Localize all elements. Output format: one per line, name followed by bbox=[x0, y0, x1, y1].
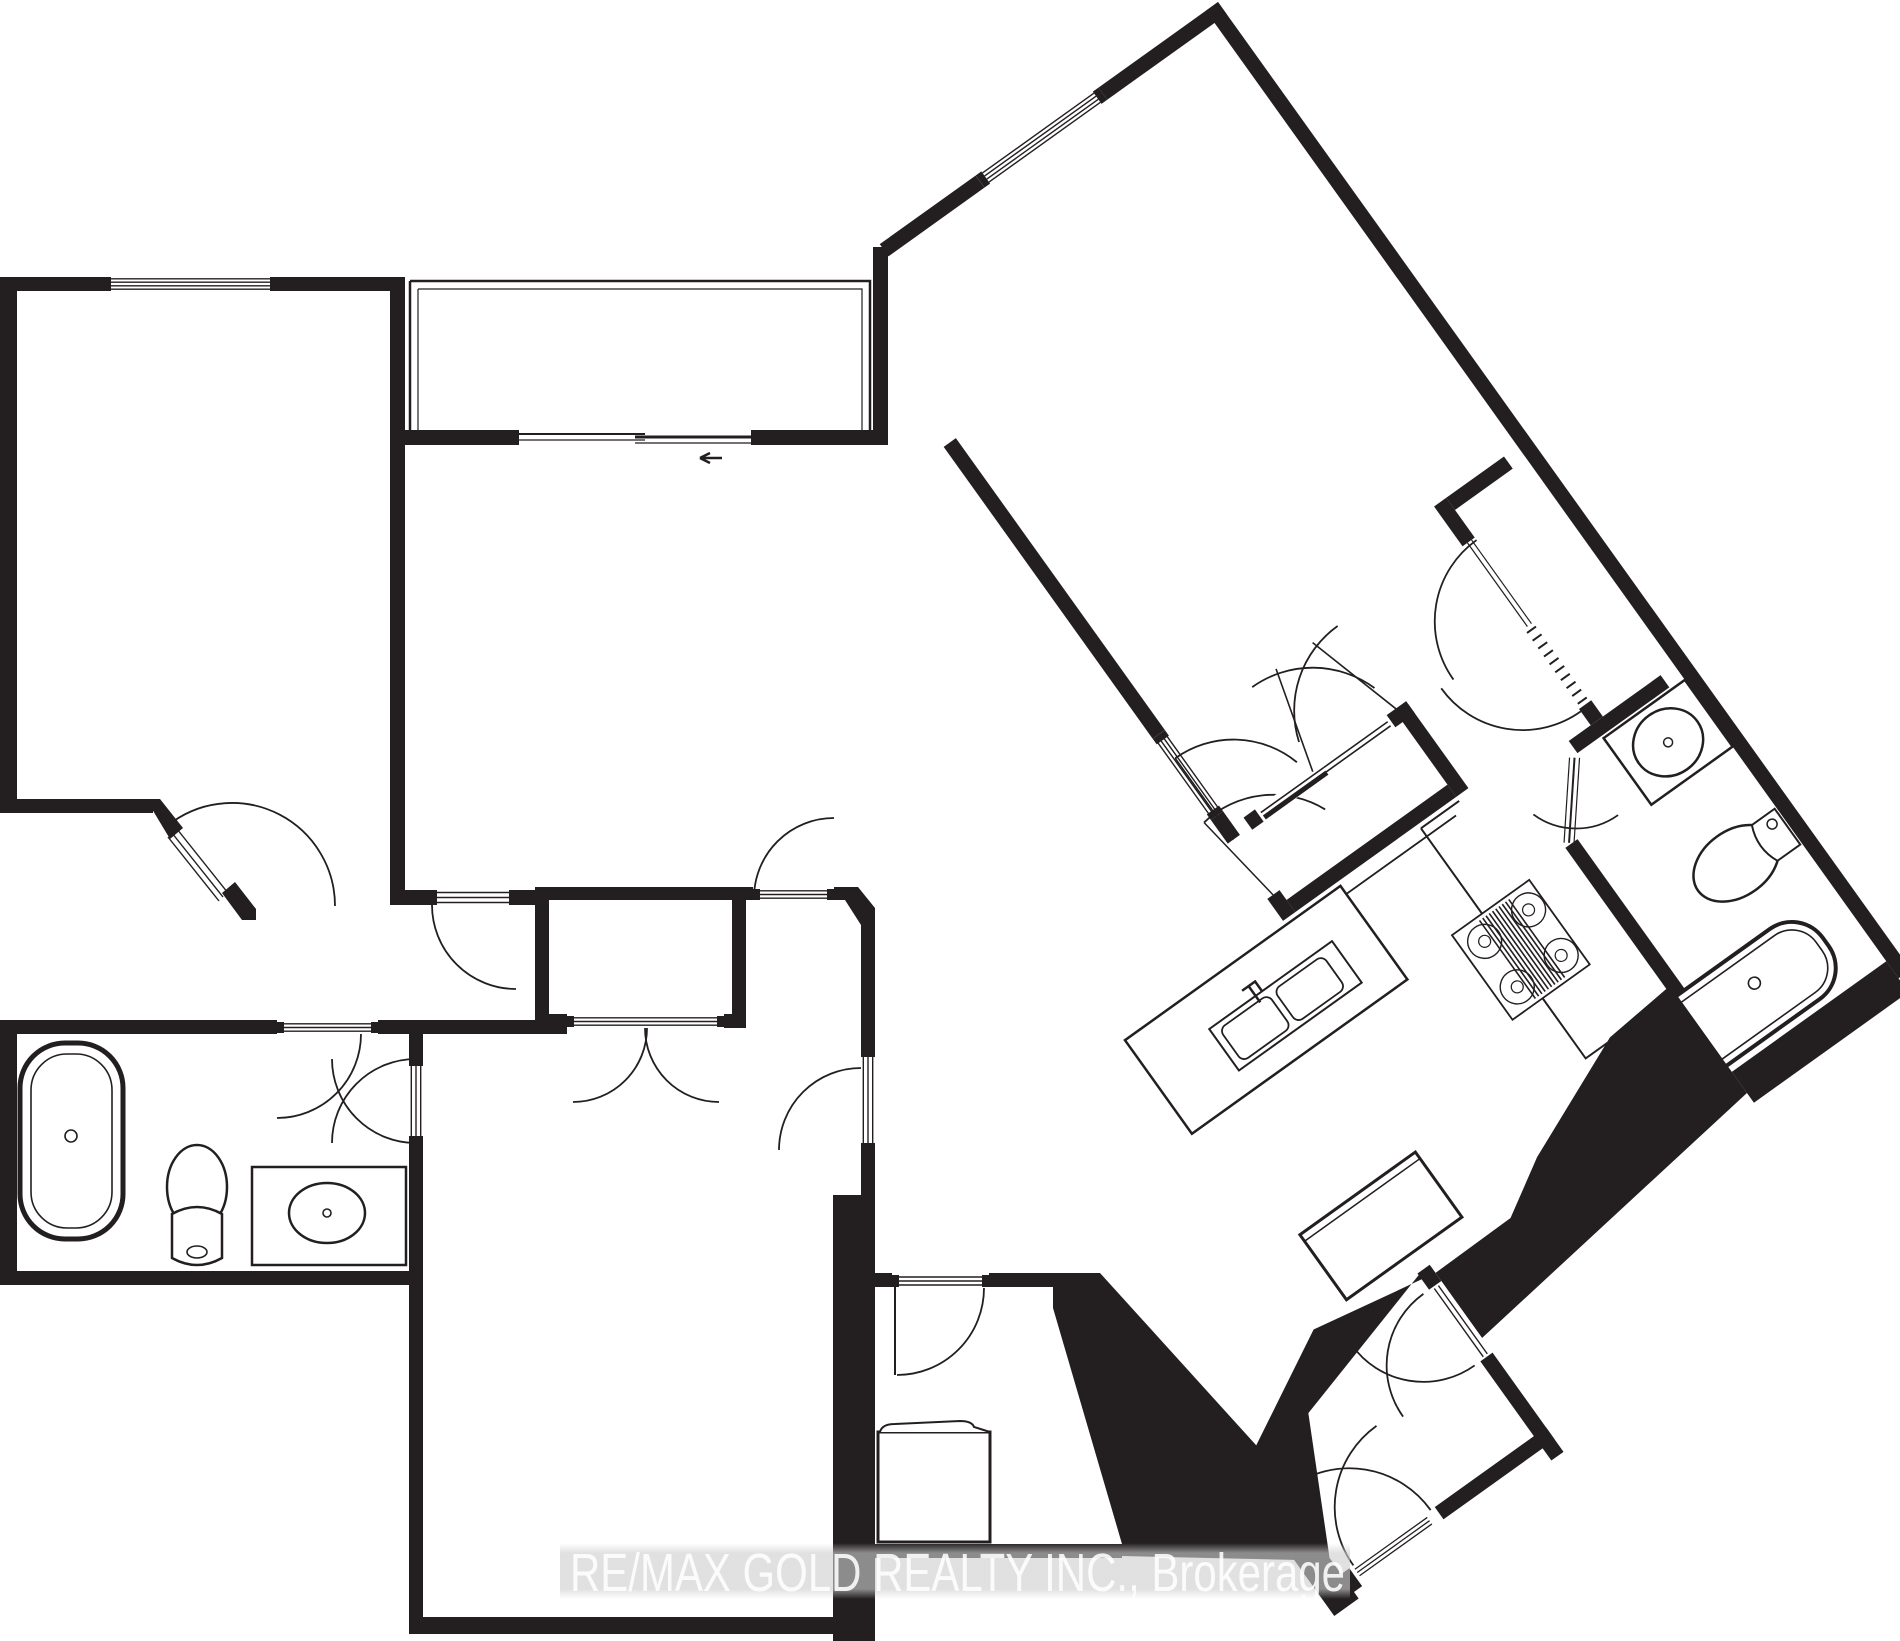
svg-text:RE/MAX GOLD REALTY INC., Broke: RE/MAX GOLD REALTY INC., Brokerage bbox=[570, 1543, 1345, 1603]
